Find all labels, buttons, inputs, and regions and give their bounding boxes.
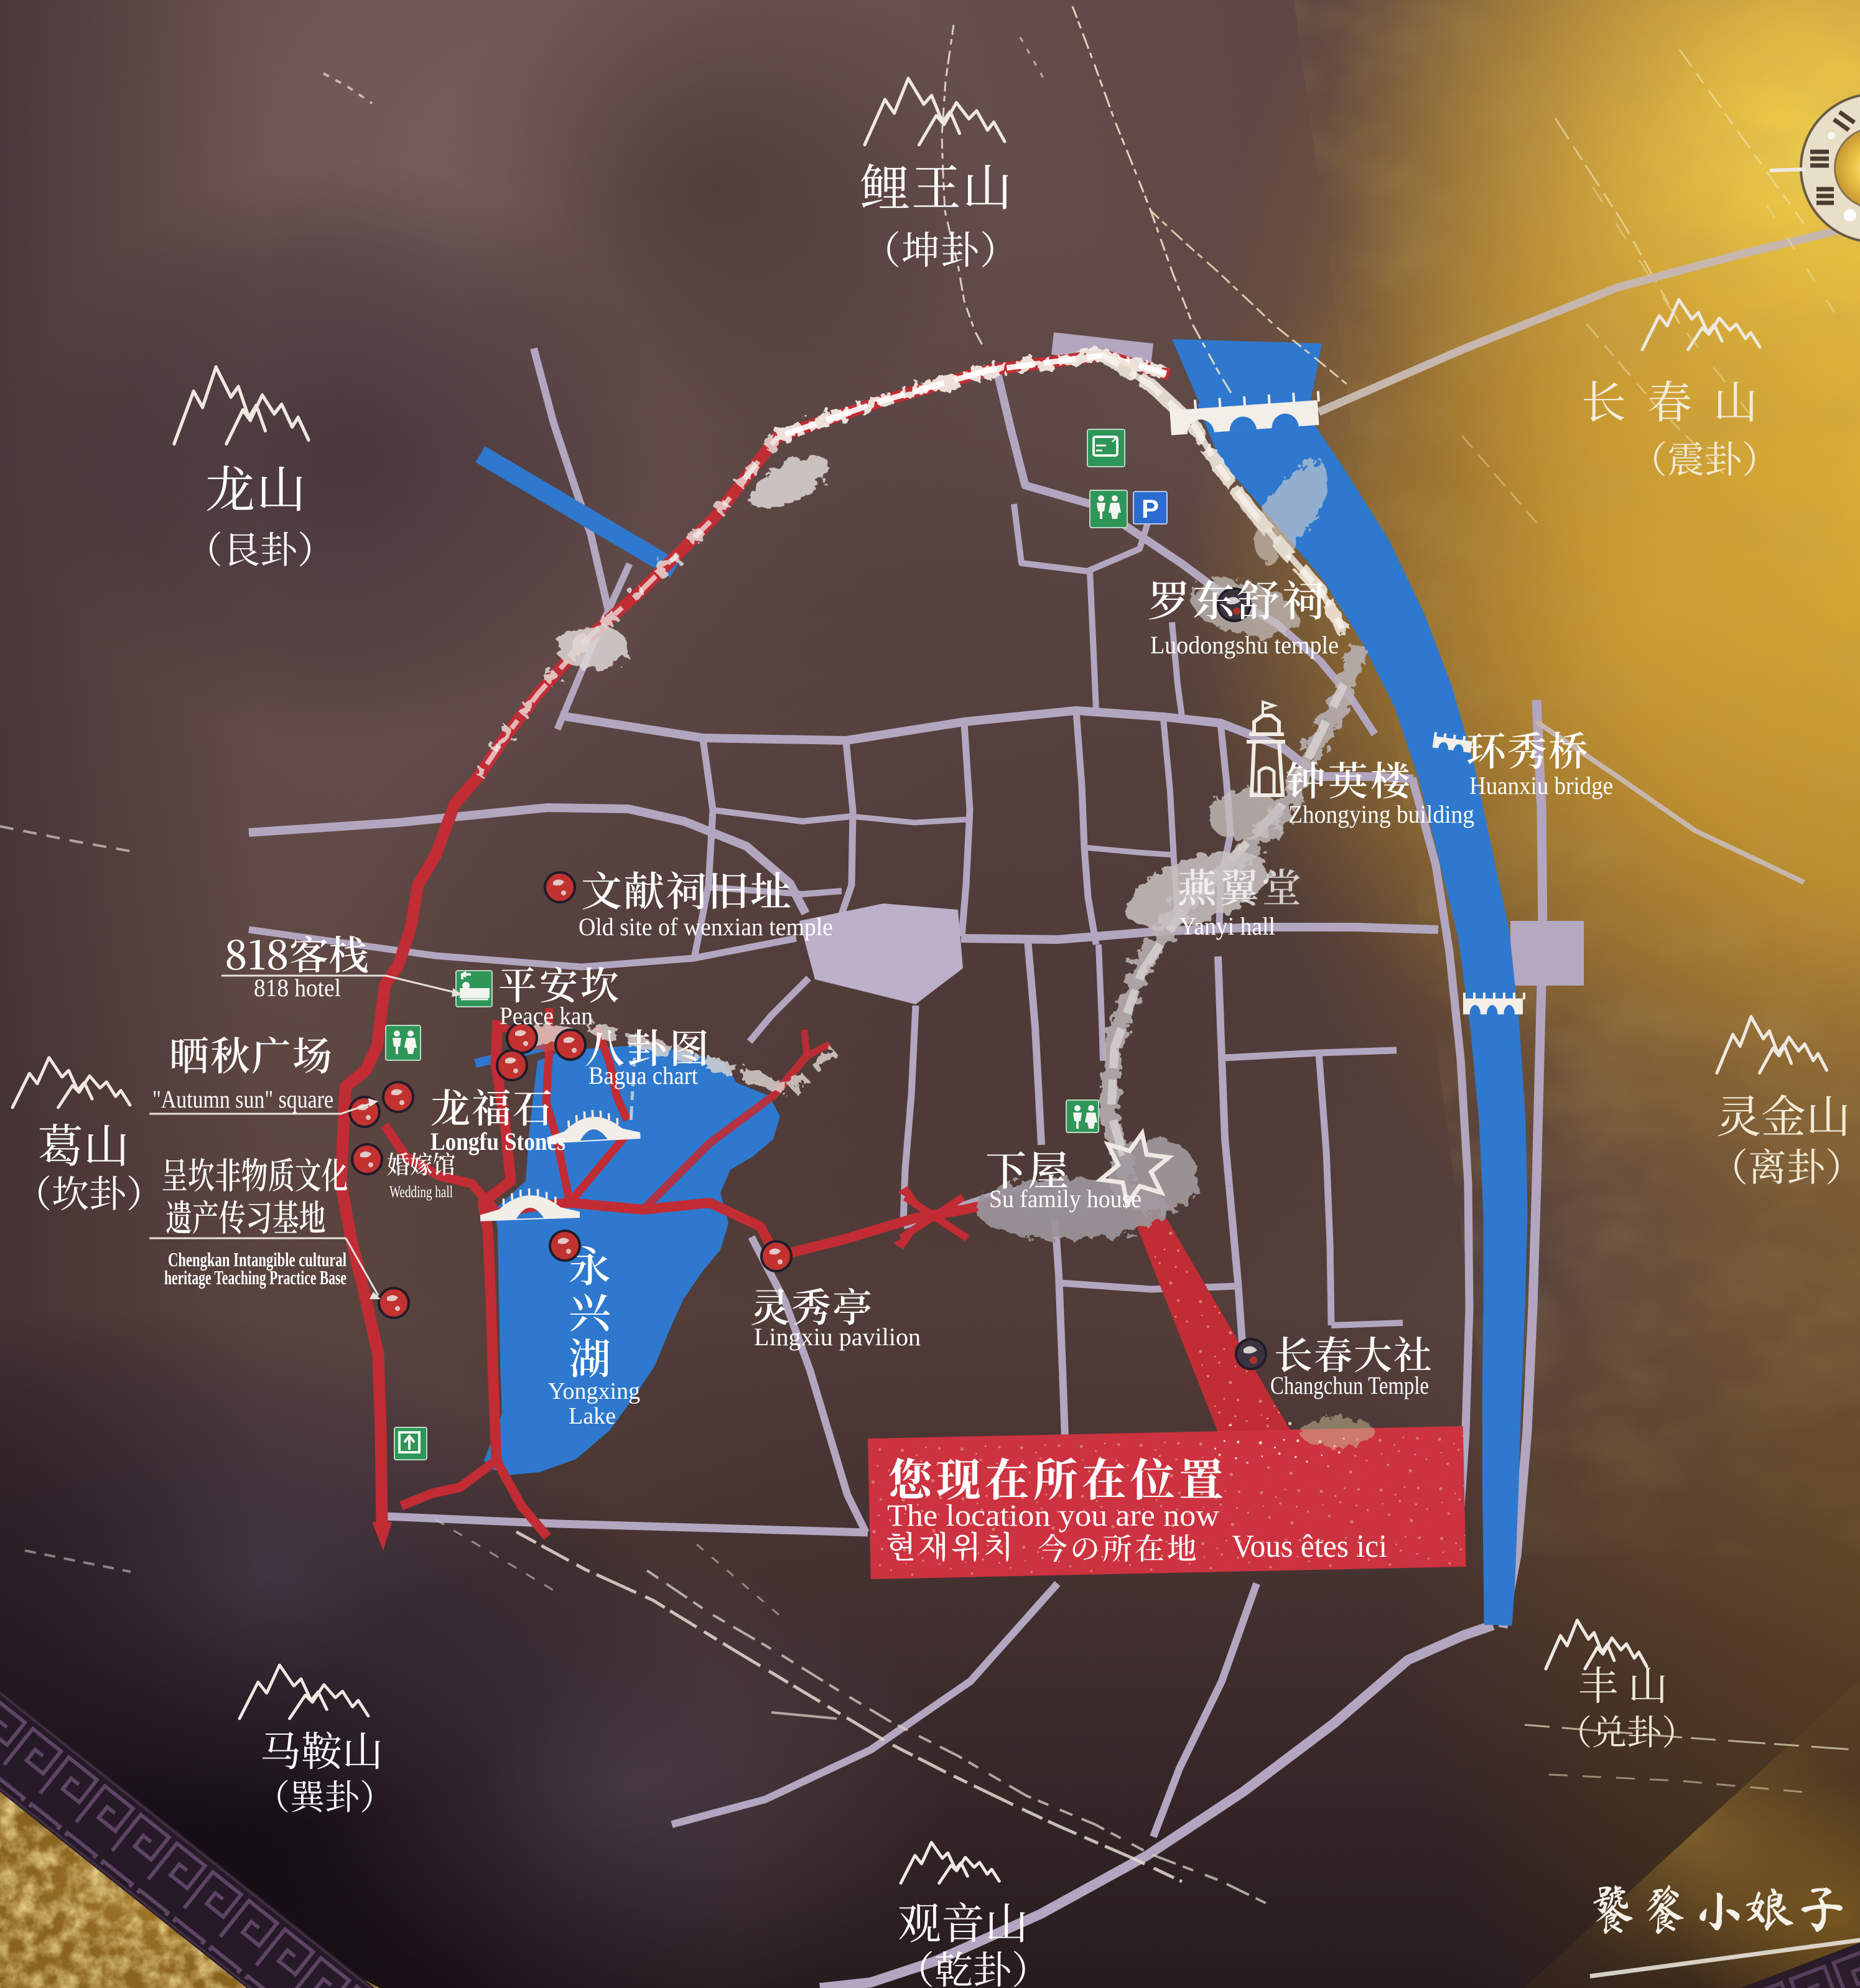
svg-text:Longfu Stones: Longfu Stones: [430, 1127, 565, 1155]
svg-text:Old site of wenxian temple: Old site of wenxian temple: [579, 913, 833, 941]
svg-text:Luodongshu temple: Luodongshu temple: [1150, 631, 1339, 659]
svg-text:818 hotel: 818 hotel: [254, 974, 341, 1002]
svg-text:Changchun Temple: Changchun Temple: [1270, 1371, 1429, 1399]
svg-text:The location you are now: The location you are now: [887, 1498, 1219, 1533]
svg-text:Huanxiu bridge: Huanxiu bridge: [1469, 772, 1613, 800]
svg-text:Su family house: Su family house: [989, 1185, 1142, 1213]
svg-text:Vous êtes ici: Vous êtes ici: [1232, 1529, 1387, 1564]
svg-text:Yanyi hall: Yanyi hall: [1179, 912, 1275, 940]
svg-text:"Autumn sun" square: "Autumn sun" square: [152, 1085, 333, 1113]
svg-text:Lingxiu pavilion: Lingxiu pavilion: [754, 1323, 921, 1351]
svg-text:Peace kan: Peace kan: [500, 1002, 593, 1030]
svg-text:Zhongying building: Zhongying building: [1288, 800, 1474, 828]
svg-text:Wedding hall: Wedding hall: [389, 1183, 453, 1201]
svg-text:P: P: [1142, 494, 1159, 523]
svg-text:heritage Teaching Practice Bas: heritage Teaching Practice Base: [164, 1266, 346, 1289]
svg-text:Lake: Lake: [569, 1403, 616, 1429]
svg-text:Yongxing: Yongxing: [548, 1378, 640, 1404]
svg-text:Bagua chart: Bagua chart: [588, 1062, 698, 1090]
